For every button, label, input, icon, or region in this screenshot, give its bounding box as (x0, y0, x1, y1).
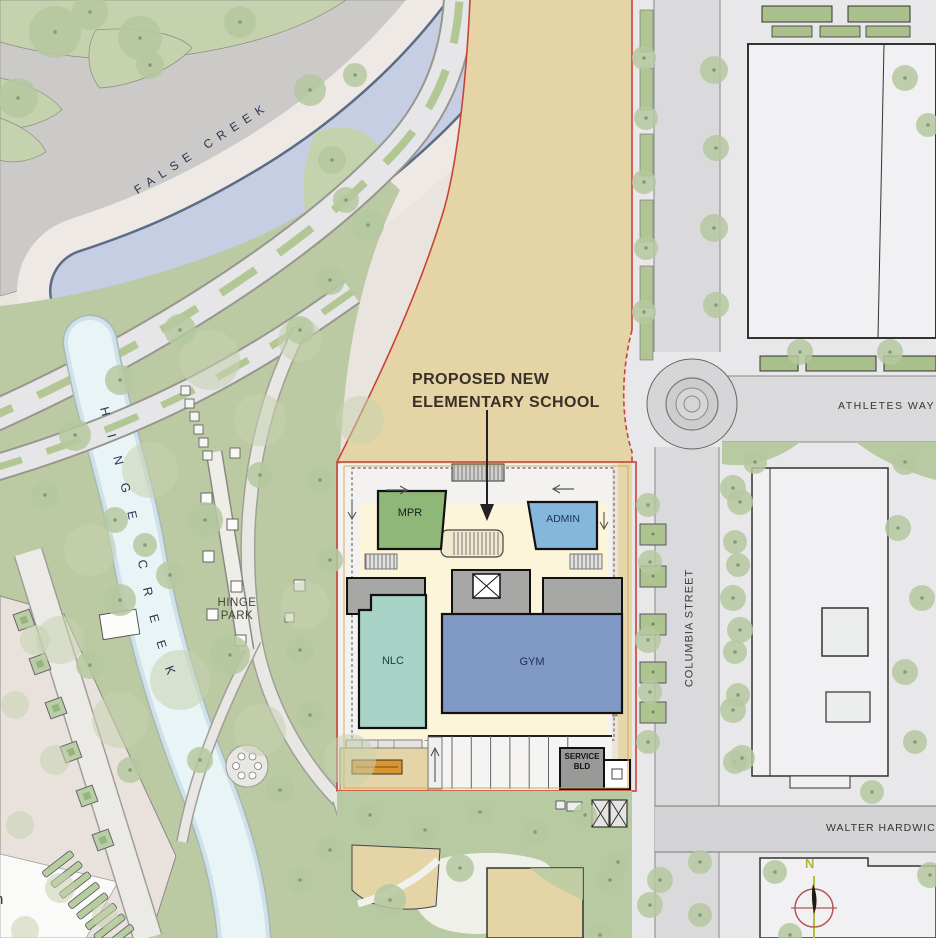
site-plan-drawing: HINGE CREEK (0, 0, 936, 938)
service-building-label: SERVICE BLD (559, 752, 605, 772)
mpr-building (378, 491, 446, 549)
proposed-line1: PROPOSED NEW (412, 368, 600, 391)
gym-label: GYM (487, 656, 577, 669)
athletes-way-label: ATHLETES WAY (838, 400, 935, 412)
hinge-park-line1: HINGE (203, 597, 271, 610)
columbia-street-label: COLUMBIA STREET (684, 569, 697, 687)
mpr-label: MPR (378, 507, 442, 520)
hinge-park-label: HINGE PARK (203, 597, 271, 623)
admin-building (528, 502, 597, 549)
proposed-line2: ELEMENTARY SCHOOL (412, 391, 600, 414)
building-northeast (748, 6, 936, 338)
service-line2: BLD (559, 762, 605, 772)
admin-label: ADMIN (530, 513, 596, 525)
site-plan-map: HINGE CREEK FALSE CREEK PROPOSED NEW ELE… (0, 0, 936, 938)
roundabout (647, 359, 737, 449)
hinge-park-line2: PARK (203, 610, 271, 623)
edge-partial-text: n (0, 891, 3, 908)
building-southeast (752, 468, 888, 788)
nlc-label: NLC (360, 655, 426, 668)
service-line1: SERVICE (559, 752, 605, 762)
walter-hardwick-label: WALTER HARDWICK (826, 822, 936, 834)
proposed-school-label: PROPOSED NEW ELEMENTARY SCHOOL (412, 368, 600, 414)
compass-north-label: N (805, 857, 814, 872)
